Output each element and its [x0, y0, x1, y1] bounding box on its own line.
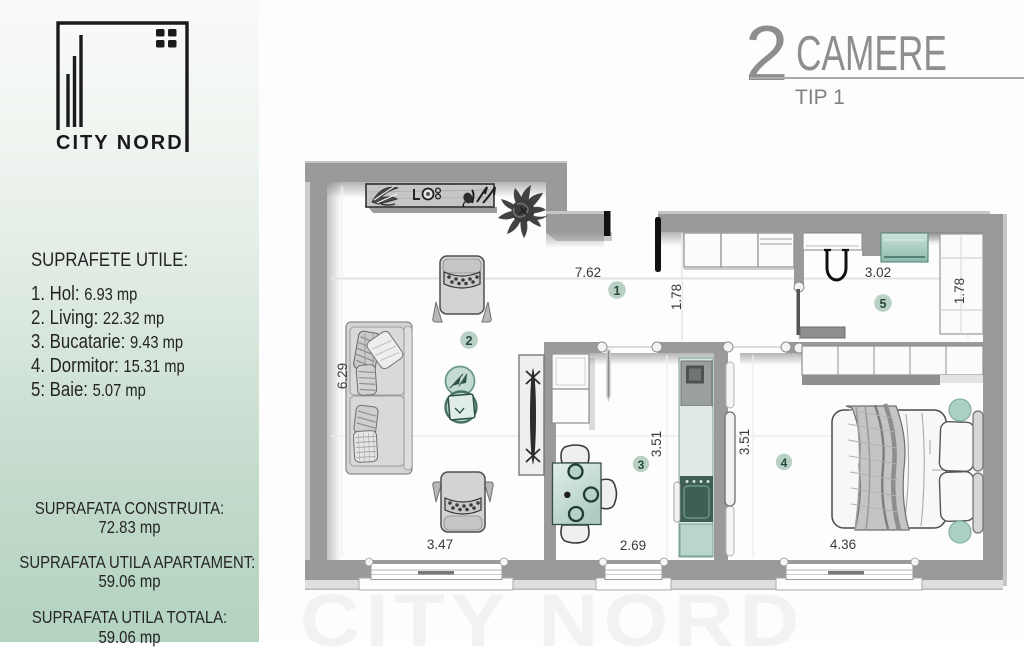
- svg-text:1: 1: [614, 284, 621, 298]
- svg-text:2: 2: [466, 334, 473, 348]
- svg-text:3.02: 3.02: [865, 265, 891, 280]
- svg-text:2.69: 2.69: [620, 538, 646, 553]
- svg-text:5: 5: [880, 297, 887, 311]
- svg-text:6.29: 6.29: [335, 363, 350, 389]
- svg-text:3: 3: [638, 458, 645, 472]
- svg-text:3.51: 3.51: [649, 431, 664, 457]
- svg-text:3.51: 3.51: [737, 429, 752, 455]
- svg-text:1.78: 1.78: [669, 284, 684, 310]
- svg-text:4: 4: [781, 456, 788, 470]
- svg-text:3.47: 3.47: [427, 537, 453, 552]
- svg-text:1.78: 1.78: [952, 278, 967, 304]
- svg-text:4.36: 4.36: [830, 537, 856, 552]
- svg-text:7.62: 7.62: [575, 265, 601, 280]
